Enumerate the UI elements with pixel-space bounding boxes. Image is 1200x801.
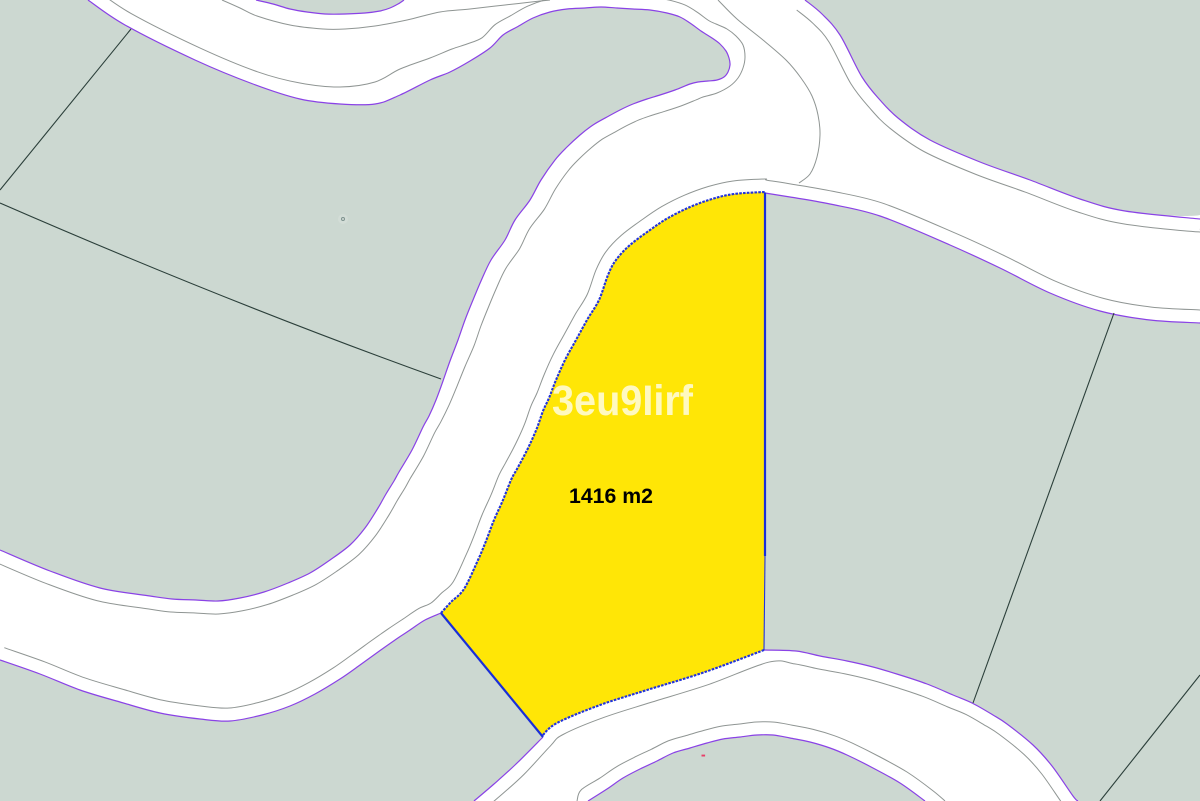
svg-text:3eu9Iirf: 3eu9Iirf	[552, 377, 694, 425]
svg-text:1416 m2: 1416 m2	[569, 485, 653, 508]
